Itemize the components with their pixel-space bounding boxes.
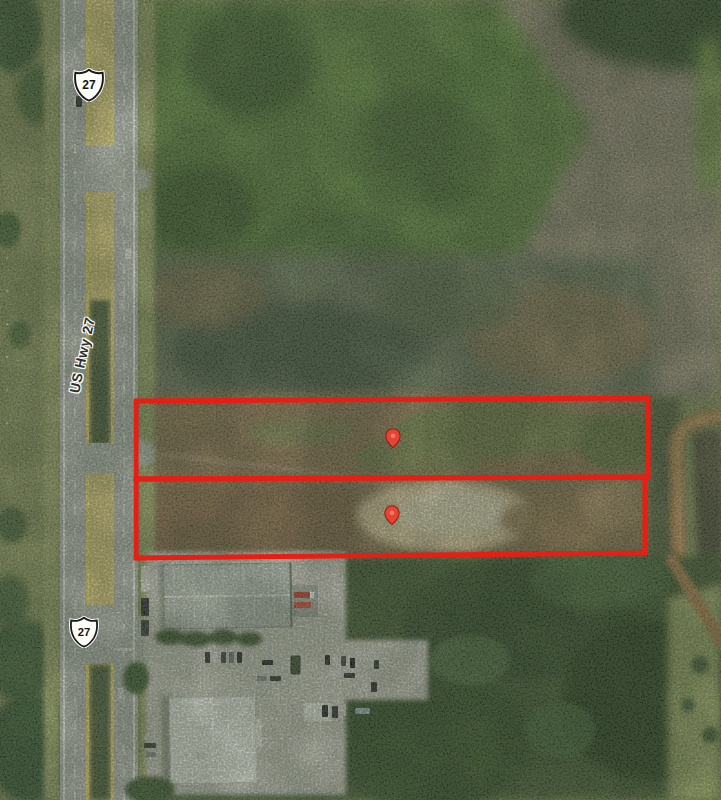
satellite-imagery [0, 0, 721, 800]
shield-number: 27 [82, 78, 96, 92]
shield-number: 27 [78, 626, 91, 638]
aerial-map[interactable]: 27 27 US Hwy 27 [0, 0, 721, 800]
